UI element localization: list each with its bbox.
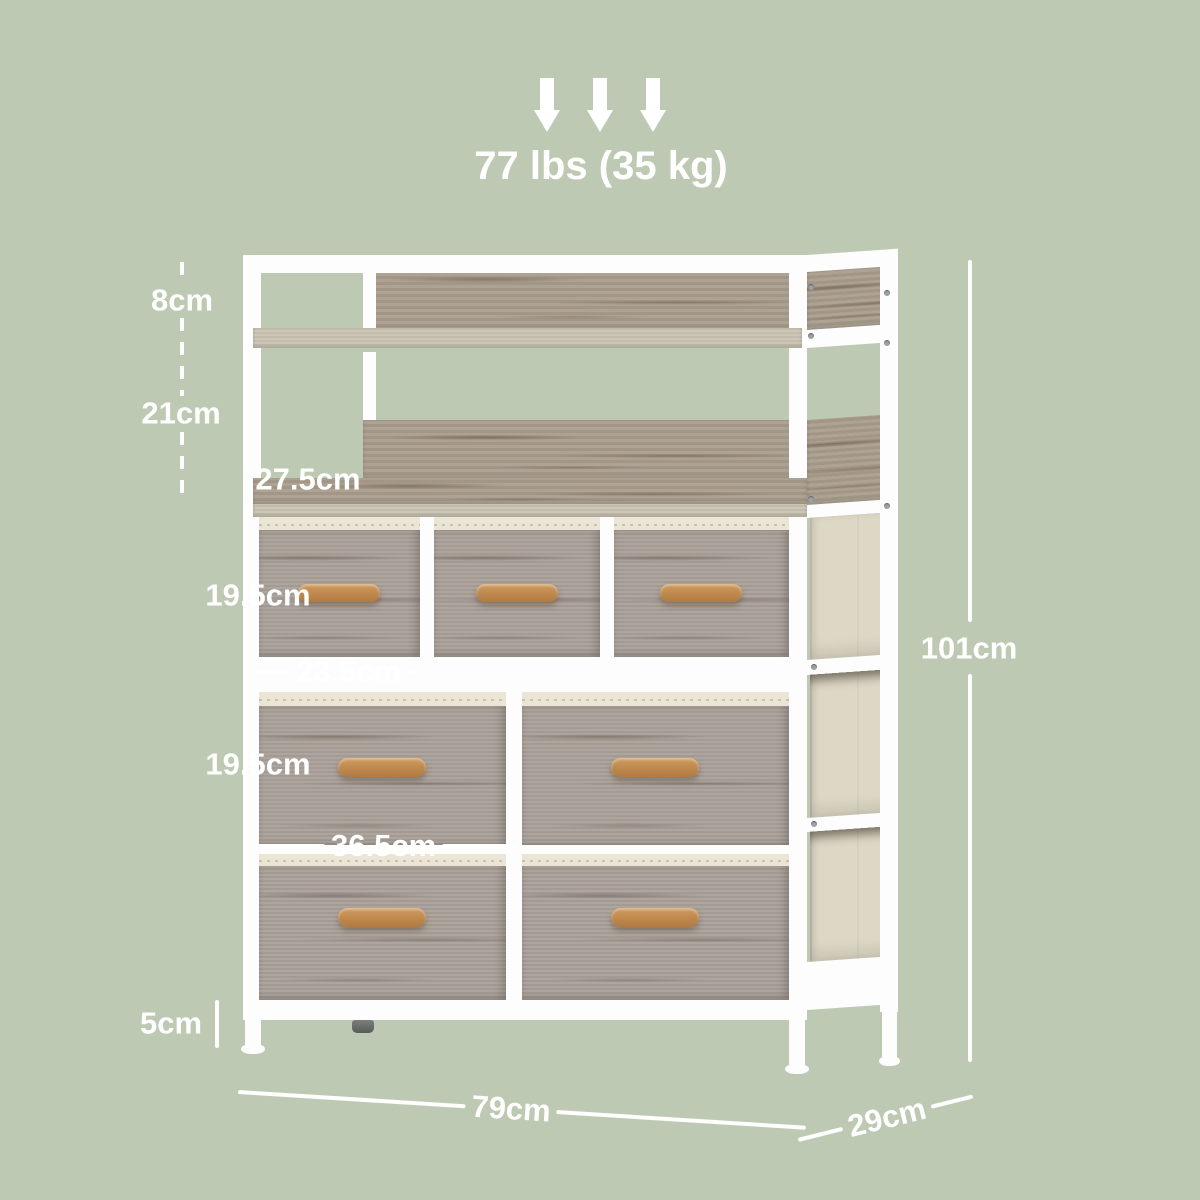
drawer-handle bbox=[338, 758, 426, 777]
down-arrow-icon bbox=[587, 78, 613, 132]
dim-line bbox=[557, 1110, 806, 1130]
dim-line bbox=[931, 1094, 973, 1108]
screw bbox=[811, 664, 817, 670]
dim-large-drawer-height-label: 19.5cm bbox=[205, 749, 310, 780]
product-dimension-diagram: 77 lbs (35 kg) bbox=[0, 0, 1200, 1200]
adjustable-glide-foot bbox=[352, 1020, 374, 1033]
leg-back-right bbox=[882, 1010, 897, 1060]
dim-line bbox=[257, 844, 325, 848]
dim-line bbox=[256, 670, 290, 674]
drawer-handle bbox=[338, 908, 426, 927]
frame-top-bar bbox=[243, 255, 807, 273]
dim-foot-height-label: 5cm bbox=[140, 1008, 202, 1039]
dim-line bbox=[238, 1090, 466, 1108]
dim-top-back-height-label: 8cm bbox=[151, 285, 213, 316]
frame-bottom-rail bbox=[243, 1000, 807, 1020]
dim-overall-height-label: 101cm bbox=[921, 633, 1018, 664]
dim-small-drawer-width-label: 23.5cm bbox=[296, 656, 401, 687]
screw bbox=[884, 503, 890, 509]
frame-post-back-left bbox=[363, 273, 376, 330]
drawer-handle bbox=[611, 908, 699, 927]
dim-shelf-clearance-label: 21cm bbox=[141, 398, 220, 429]
drawer-handle bbox=[660, 584, 742, 602]
frame-divider bbox=[506, 854, 522, 1000]
screw bbox=[811, 821, 817, 827]
dim-line bbox=[798, 1126, 844, 1141]
drawer-front-r3c2 bbox=[522, 866, 789, 1000]
dim-overall-width: 79cm bbox=[237, 1076, 807, 1143]
foot-front-left bbox=[241, 1044, 265, 1054]
dim-line bbox=[442, 844, 515, 848]
screw bbox=[884, 340, 890, 346]
drawer-handle bbox=[611, 758, 699, 777]
open-shelf-board bbox=[253, 328, 802, 348]
down-arrow-icon bbox=[640, 78, 666, 132]
dim-small-drawer-height-label: 19.5cm bbox=[205, 580, 310, 611]
frame-divider bbox=[506, 692, 522, 847]
weight-capacity-label: 77 lbs (35 kg) bbox=[474, 146, 727, 186]
dim-overall-width-label: 79cm bbox=[471, 1091, 552, 1127]
dim-large-drawer-width-label: 36.5cm bbox=[331, 830, 436, 861]
dim-overall-height-line bbox=[968, 260, 972, 622]
frame-post-back-right bbox=[880, 250, 898, 1012]
screw bbox=[808, 496, 814, 502]
dim-overall-height-line bbox=[968, 674, 972, 1062]
frame-post-back-left bbox=[363, 352, 376, 420]
cabinet-top-front-edge bbox=[253, 504, 807, 517]
dim-shelf-clearance-line bbox=[180, 318, 184, 396]
lower-backboard bbox=[363, 420, 797, 478]
foot-back-right bbox=[879, 1056, 900, 1066]
drawer-front-r3c1 bbox=[259, 866, 506, 1000]
screw bbox=[808, 333, 814, 339]
frame-post-front-right bbox=[789, 255, 807, 1020]
frame-divider bbox=[600, 517, 614, 657]
screw bbox=[884, 290, 890, 296]
dim-small-drawer-width: 23.5cm bbox=[256, 656, 414, 687]
frame-divider bbox=[420, 517, 434, 657]
dim-shelf-depth-label: 27.5cm bbox=[255, 464, 360, 495]
down-arrow-icon bbox=[534, 78, 560, 132]
dim-shelf-clearance-line bbox=[180, 432, 184, 498]
dim-line bbox=[407, 670, 414, 674]
dim-large-drawer-width: 36.5cm bbox=[257, 830, 515, 861]
screw bbox=[808, 284, 814, 290]
drawer-handle bbox=[476, 584, 558, 602]
dim-foot-height-line bbox=[215, 1000, 219, 1048]
foot-front-right bbox=[785, 1064, 809, 1074]
leg-front-right bbox=[789, 1020, 805, 1068]
